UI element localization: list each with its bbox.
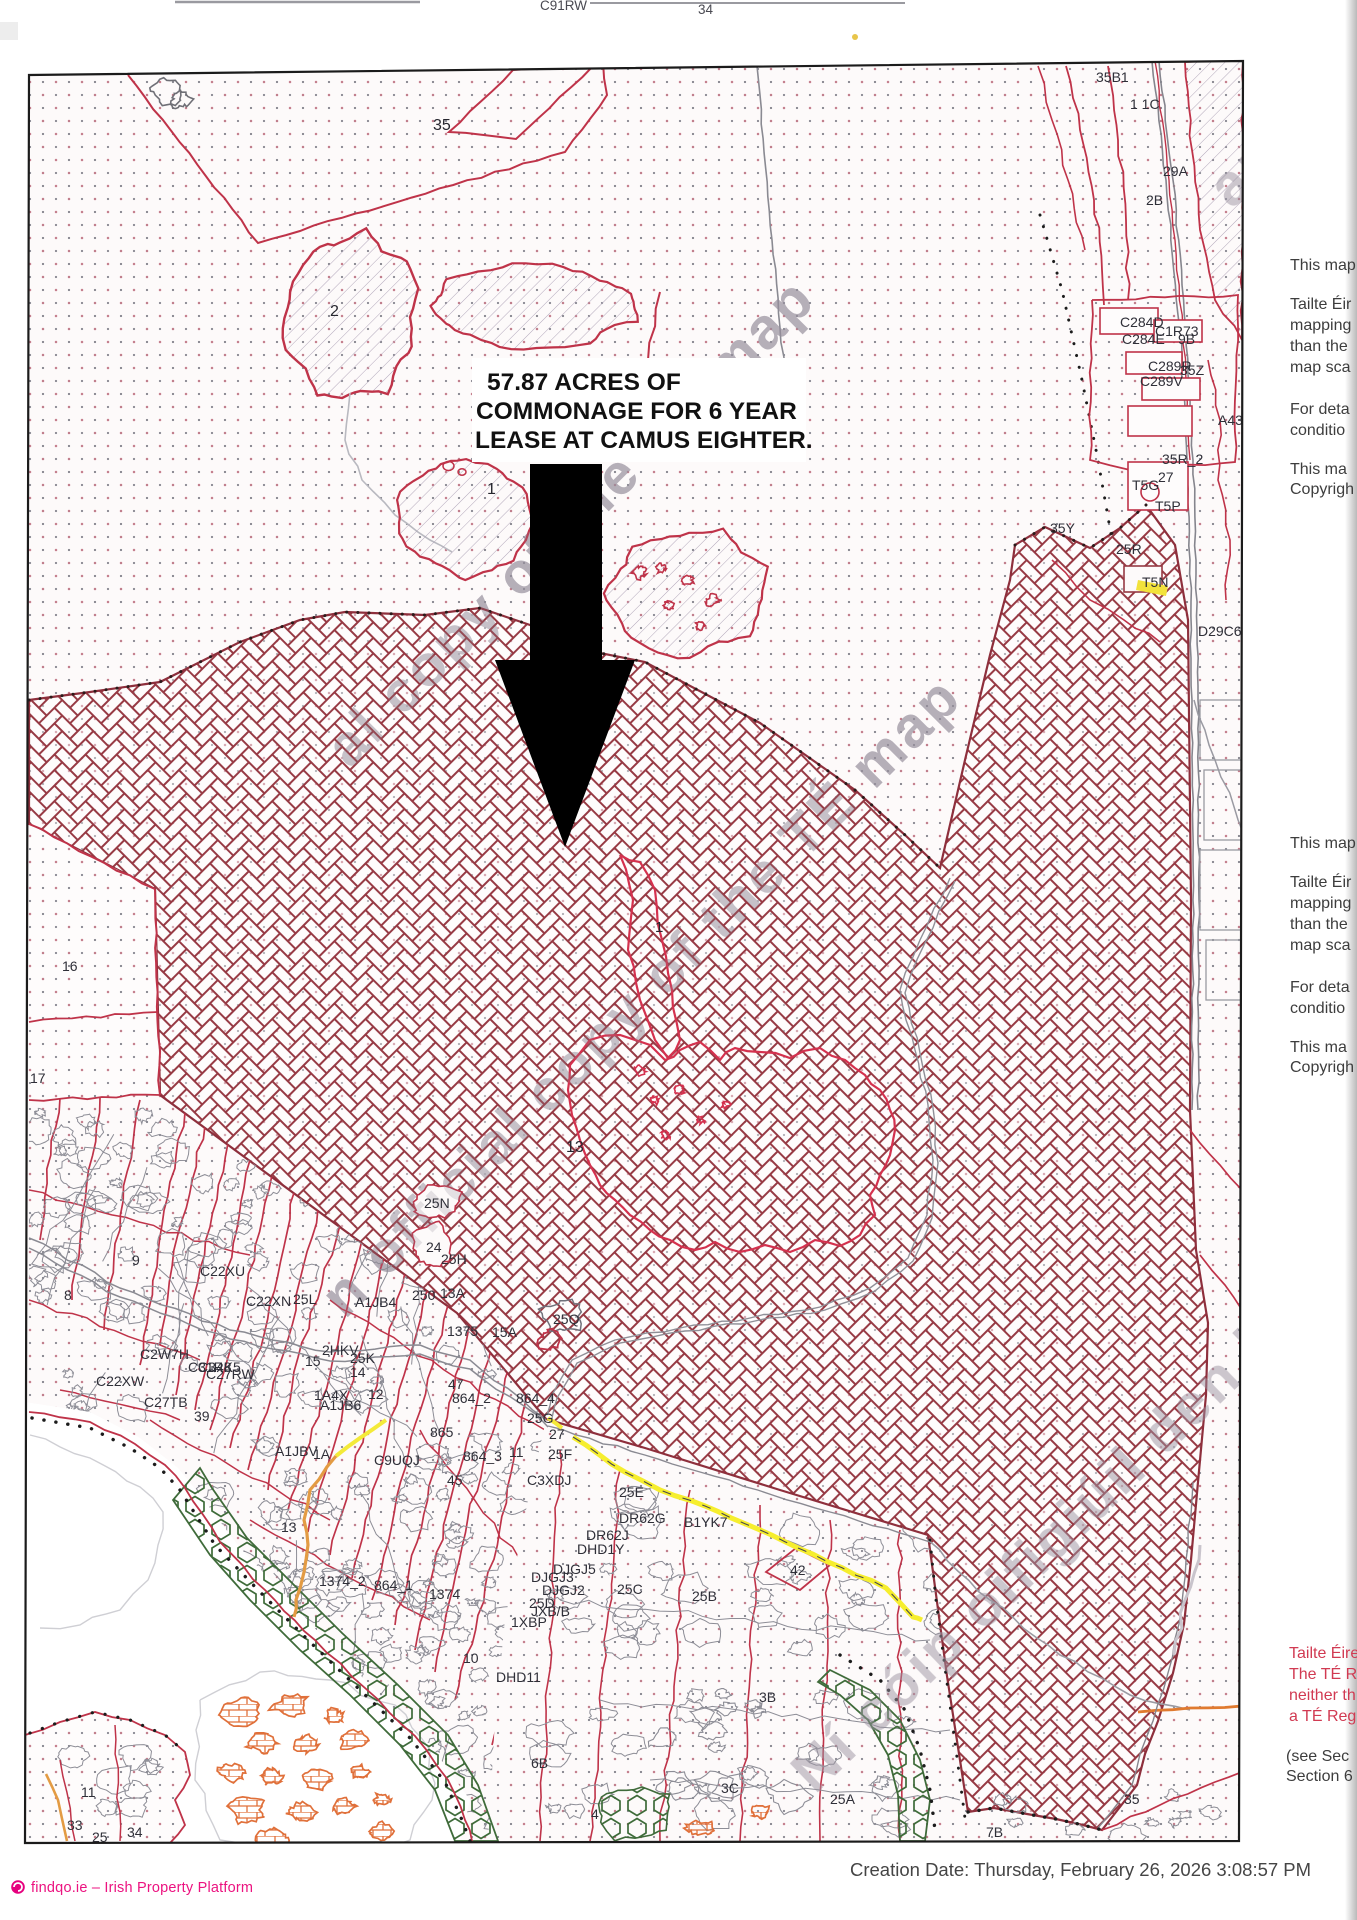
svg-text:This ma: This ma — [1290, 461, 1347, 478]
svg-text:1374: 1374 — [429, 1586, 460, 1602]
svg-text:35: 35 — [433, 117, 451, 134]
svg-text:neither th: neither th — [1289, 1687, 1356, 1704]
svg-text:14: 14 — [350, 1364, 366, 1380]
svg-text:1375: 1375 — [447, 1323, 478, 1339]
svg-text:10: 10 — [463, 1650, 479, 1666]
svg-text:865: 865 — [430, 1424, 454, 1440]
svg-text:25C: 25C — [617, 1581, 643, 1597]
svg-text:DHD1Y: DHD1Y — [577, 1541, 625, 1557]
svg-text:Section 6: Section 6 — [1286, 1768, 1353, 1785]
svg-text:C22XN: C22XN — [246, 1293, 291, 1309]
svg-text:Copyrigh: Copyrigh — [1290, 1059, 1354, 1076]
svg-text:map sca: map sca — [1290, 359, 1351, 376]
svg-text:A1JBV: A1JBV — [275, 1443, 318, 1459]
svg-text:25G: 25G — [527, 1410, 553, 1426]
svg-text:B1YK7: B1YK7 — [684, 1514, 728, 1530]
svg-text:17: 17 — [30, 1070, 46, 1086]
svg-text:45: 45 — [447, 1472, 463, 1488]
svg-text:DHD11: DHD11 — [496, 1669, 541, 1685]
svg-text:12: 12 — [368, 1386, 384, 1402]
svg-text:C27TB: C27TB — [144, 1394, 188, 1410]
svg-text:The TÉ R: The TÉ R — [1289, 1664, 1357, 1683]
svg-text:LEASE AT CAMUS EIGHTER.: LEASE AT CAMUS EIGHTER. — [475, 427, 813, 454]
svg-text:34: 34 — [698, 2, 714, 17]
svg-text:COMMONAGE FOR 6 YEAR: COMMONAGE FOR 6 YEAR — [476, 398, 797, 425]
svg-text:25L: 25L — [293, 1291, 317, 1307]
svg-text:25R: 25R — [1116, 541, 1142, 557]
svg-text:15A: 15A — [492, 1324, 518, 1340]
svg-text:D29C6: D29C6 — [1198, 623, 1242, 639]
svg-text:25N: 25N — [424, 1195, 450, 1211]
svg-text:864_4: 864_4 — [516, 1390, 555, 1406]
svg-text:DR62G: DR62G — [619, 1510, 666, 1526]
svg-text:C91RW: C91RW — [540, 0, 587, 13]
svg-text:33: 33 — [67, 1817, 83, 1833]
svg-text:than the: than the — [1290, 338, 1348, 355]
svg-text:A1JB4: A1JB4 — [355, 1294, 396, 1310]
svg-text:C2W7H: C2W7H — [140, 1346, 189, 1362]
svg-text:T5G: T5G — [1132, 477, 1159, 493]
svg-text:1 1C: 1 1C — [1130, 96, 1160, 112]
svg-text:C3XDJ: C3XDJ — [527, 1472, 571, 1488]
svg-text:C289V: C289V — [1140, 373, 1183, 389]
svg-text:1A: 1A — [313, 1446, 331, 1462]
svg-text:1: 1 — [487, 481, 496, 498]
svg-text:13: 13 — [566, 1139, 584, 1156]
svg-text:6B: 6B — [531, 1755, 548, 1771]
svg-text:findqo.ie – Irish Property Pla: findqo.ie – Irish Property Platform — [31, 1880, 253, 1896]
svg-text:13: 13 — [281, 1519, 297, 1535]
svg-text:34: 34 — [127, 1824, 143, 1840]
svg-text:35Y: 35Y — [1050, 520, 1076, 536]
svg-text:3B: 3B — [759, 1689, 776, 1705]
svg-text:C22XU: C22XU — [200, 1263, 245, 1279]
svg-text:This ma: This ma — [1290, 1039, 1347, 1056]
svg-text:25F: 25F — [548, 1446, 572, 1462]
svg-text:25A: 25A — [830, 1791, 856, 1807]
svg-text:16: 16 — [62, 958, 78, 974]
svg-text:C9UQJ: C9UQJ — [374, 1452, 420, 1468]
svg-text:mapping: mapping — [1290, 317, 1351, 334]
svg-text:This map: This map — [1290, 257, 1356, 274]
svg-text:25E: 25E — [619, 1484, 644, 1500]
svg-text:250: 250 — [412, 1287, 436, 1303]
svg-text:29A: 29A — [1163, 163, 1189, 179]
svg-text:4: 4 — [591, 1806, 599, 1822]
svg-text:3C: 3C — [721, 1780, 739, 1796]
svg-text:11: 11 — [81, 1784, 96, 1800]
svg-text:35Z: 35Z — [1180, 362, 1205, 378]
svg-text:C22XW: C22XW — [96, 1373, 145, 1389]
svg-text:9B: 9B — [1178, 331, 1195, 347]
svg-text:A1JB6: A1JB6 — [320, 1397, 361, 1413]
svg-text:7B: 7B — [986, 1824, 1003, 1840]
svg-text:(see Sec: (see Sec — [1286, 1748, 1349, 1765]
svg-text:35R_2: 35R_2 — [1162, 451, 1203, 467]
svg-text:than the: than the — [1290, 916, 1348, 933]
svg-text:25B: 25B — [692, 1588, 717, 1604]
svg-text:15: 15 — [305, 1353, 321, 1369]
svg-text:2: 2 — [330, 303, 339, 320]
svg-text:For deta: For deta — [1290, 401, 1350, 418]
svg-text:13A: 13A — [440, 1285, 466, 1301]
svg-text:Creation Date: Thursday, Febru: Creation Date: Thursday, February 26, 20… — [850, 1859, 1311, 1880]
svg-text:For deta: For deta — [1290, 979, 1350, 996]
svg-text:25H: 25H — [441, 1251, 467, 1267]
svg-text:map sca: map sca — [1290, 937, 1351, 954]
svg-text:24: 24 — [426, 1239, 442, 1255]
svg-text:27: 27 — [549, 1426, 565, 1442]
svg-text:57.87 ACRES OF: 57.87 ACRES OF — [487, 369, 681, 396]
svg-text:Tailte Éir: Tailte Éir — [1290, 294, 1352, 313]
svg-text:2B: 2B — [1146, 192, 1163, 208]
svg-text:8: 8 — [64, 1287, 72, 1303]
svg-text:35B1: 35B1 — [1096, 69, 1129, 85]
svg-text:Tailte Éire: Tailte Éire — [1289, 1643, 1357, 1662]
svg-text:T5N: T5N — [1142, 574, 1168, 590]
svg-text:a TÉ Reg: a TÉ Reg — [1289, 1706, 1356, 1725]
svg-text:Copyrigh: Copyrigh — [1290, 481, 1354, 498]
svg-text:conditio: conditio — [1290, 1000, 1345, 1017]
svg-text:C27RW: C27RW — [206, 1366, 256, 1382]
svg-text:C284E: C284E — [1122, 331, 1165, 347]
svg-text:mapping: mapping — [1290, 895, 1351, 912]
svg-text:A43: A43 — [1218, 412, 1243, 428]
svg-text:27: 27 — [1158, 469, 1174, 485]
svg-text:39: 39 — [194, 1408, 210, 1424]
svg-text:9: 9 — [132, 1252, 140, 1268]
svg-text:42: 42 — [790, 1562, 806, 1578]
svg-text:25Q: 25Q — [553, 1311, 580, 1327]
svg-text:T5P: T5P — [1155, 498, 1181, 514]
svg-text:This map: This map — [1290, 835, 1356, 852]
svg-text:Tailte Éir: Tailte Éir — [1290, 872, 1352, 891]
svg-text:1374_2: 1374_2 — [319, 1573, 366, 1589]
svg-text:864_1: 864_1 — [374, 1577, 413, 1593]
svg-text:1XBP: 1XBP — [511, 1614, 547, 1630]
svg-text:864_2: 864_2 — [452, 1390, 491, 1406]
svg-text:11: 11 — [509, 1444, 524, 1460]
svg-text:35: 35 — [1124, 1791, 1140, 1807]
svg-text:conditio: conditio — [1290, 422, 1345, 439]
svg-text:864_3: 864_3 — [463, 1448, 502, 1464]
